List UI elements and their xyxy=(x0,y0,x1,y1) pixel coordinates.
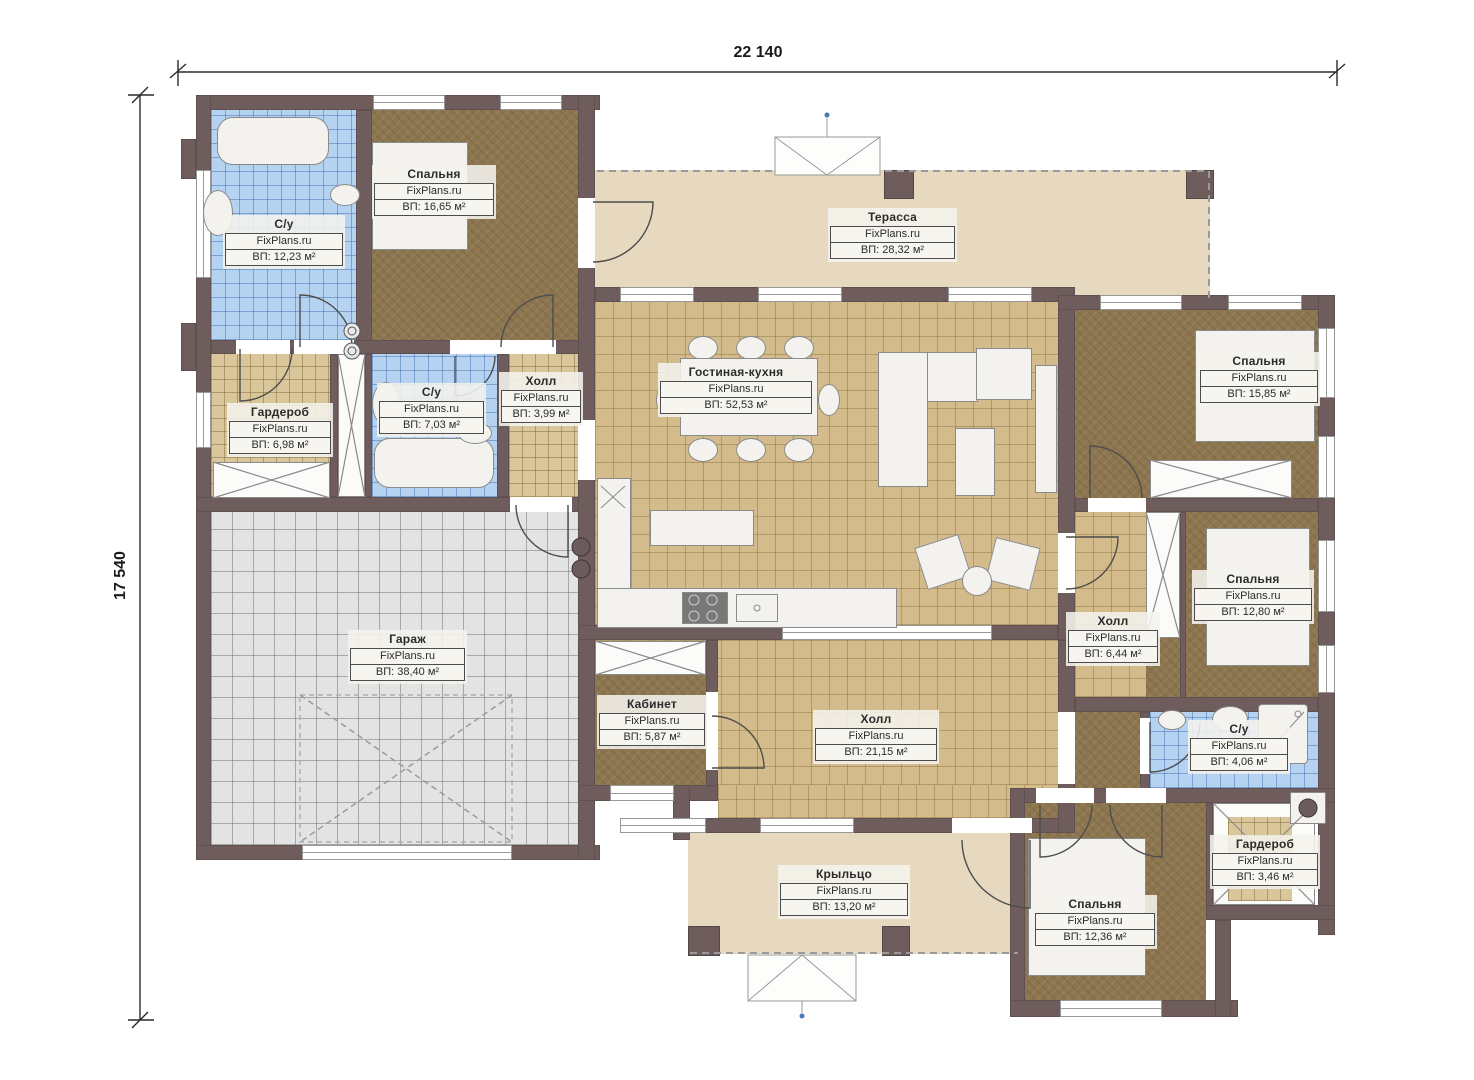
brand-watermark: FixPlans.ru xyxy=(230,422,330,438)
dimension-width-label: 22 140 xyxy=(688,44,828,62)
room-label-hall-1: Холл FixPlans.ru ВП: 3,99 м² xyxy=(499,372,583,426)
room-area: ВП: 12,36 м² xyxy=(1036,930,1154,945)
room-name: Гараж xyxy=(350,632,465,646)
room-name: Спальня xyxy=(374,167,494,181)
room-name: Терасса xyxy=(830,210,955,224)
side-table xyxy=(962,566,992,596)
room-area: ВП: 3,46 м² xyxy=(1213,870,1317,885)
room-area: ВП: 3,99 м² xyxy=(502,407,580,422)
door-opening xyxy=(450,340,500,354)
wall-segment xyxy=(365,354,372,497)
room-info-box: FixPlans.ru ВП: 13,20 м² xyxy=(780,883,908,916)
window xyxy=(620,287,694,302)
room-area: ВП: 13,20 м² xyxy=(781,900,907,915)
window xyxy=(1228,295,1302,310)
garage-gate xyxy=(302,845,512,860)
room-name: Гостиная-кухня xyxy=(660,365,812,379)
room-label-bathroom-2: С/у FixPlans.ru ВП: 7,03 м² xyxy=(377,383,486,437)
room-label-bedroom-2: Спальня FixPlans.ru ВП: 15,85 м² xyxy=(1198,352,1320,406)
door-opening xyxy=(294,340,354,354)
dimension-height-label: 17 540 xyxy=(112,551,130,600)
room-label-wardrobe-2: Гардероб FixPlans.ru ВП: 3,46 м² xyxy=(1210,835,1320,889)
room-info-box: FixPlans.ru ВП: 3,99 м² xyxy=(501,390,581,423)
room-label-living-kitchen: Гостиная-кухня FixPlans.ru ВП: 52,53 м² xyxy=(658,363,814,417)
room-label-terrace: Терасса FixPlans.ru ВП: 28,32 м² xyxy=(828,208,957,262)
room-area: ВП: 6,44 м² xyxy=(1069,647,1157,662)
window xyxy=(610,785,674,801)
brand-watermark: FixPlans.ru xyxy=(1195,589,1311,605)
brand-watermark: FixPlans.ru xyxy=(1036,914,1154,930)
room-name: Спальня xyxy=(1200,354,1318,368)
brand-watermark: FixPlans.ru xyxy=(1191,739,1287,755)
room-info-box: FixPlans.ru ВП: 52,53 м² xyxy=(660,381,812,414)
bathtub xyxy=(374,438,494,488)
room-name: Гардероб xyxy=(1212,837,1318,851)
stove xyxy=(682,592,728,624)
room-info-box: FixPlans.ru ВП: 28,32 м² xyxy=(830,226,955,259)
chair xyxy=(736,336,766,360)
bathtub xyxy=(217,117,329,165)
room-name: Спальня xyxy=(1194,572,1312,586)
room-info-box: FixPlans.ru ВП: 12,80 м² xyxy=(1194,588,1312,621)
room-area: ВП: 5,87 м² xyxy=(600,730,704,745)
brand-watermark: FixPlans.ru xyxy=(380,402,483,418)
porch-column xyxy=(882,926,910,956)
room-label-bedroom-4: Спальня FixPlans.ru ВП: 12,36 м² xyxy=(1033,895,1157,949)
room-label-garage: Гараж FixPlans.ru ВП: 38,40 м² xyxy=(348,630,467,684)
room-label-cabinet: Кабинет FixPlans.ru ВП: 5,87 м² xyxy=(597,695,707,749)
window xyxy=(948,287,1032,302)
room-area: ВП: 4,06 м² xyxy=(1191,755,1287,770)
room-label-porch: Крыльцо FixPlans.ru ВП: 13,20 м² xyxy=(778,865,910,919)
wardrobe-closet xyxy=(1150,460,1292,498)
kitchen-island xyxy=(650,510,754,546)
room-label-bedroom-3: Спальня FixPlans.ru ВП: 12,80 м² xyxy=(1192,570,1314,624)
room-name: Крыльцо xyxy=(780,867,908,881)
room-area: ВП: 28,32 м² xyxy=(831,243,954,258)
room-name: С/у xyxy=(225,217,343,231)
room-info-box: FixPlans.ru ВП: 21,15 м² xyxy=(815,728,937,761)
wardrobe-closet xyxy=(338,354,365,497)
brand-watermark: FixPlans.ru xyxy=(600,714,704,730)
door-opening-entrance xyxy=(952,818,1032,833)
brand-watermark: FixPlans.ru xyxy=(1201,371,1317,387)
room-info-box: FixPlans.ru ВП: 12,36 м² xyxy=(1035,913,1155,946)
chair xyxy=(736,438,766,462)
sideboard xyxy=(1035,365,1057,493)
room-name: Кабинет xyxy=(599,697,705,711)
door-opening xyxy=(1058,712,1075,784)
door-opening xyxy=(510,497,572,512)
door-opening xyxy=(1140,718,1150,774)
room-info-box: FixPlans.ru ВП: 3,46 м² xyxy=(1212,853,1318,886)
room-info-box: FixPlans.ru ВП: 12,23 м² xyxy=(225,233,343,266)
chair xyxy=(688,336,718,360)
room-info-box: FixPlans.ru ВП: 4,06 м² xyxy=(1190,738,1288,771)
room-info-box: FixPlans.ru ВП: 15,85 м² xyxy=(1200,370,1318,403)
window xyxy=(500,95,562,110)
brand-watermark: FixPlans.ru xyxy=(226,234,342,250)
brand-watermark: FixPlans.ru xyxy=(375,184,493,200)
window xyxy=(196,392,211,448)
room-area: ВП: 16,65 м² xyxy=(375,200,493,215)
room-name: С/у xyxy=(1190,722,1288,736)
brand-watermark: FixPlans.ru xyxy=(816,729,936,745)
door-opening xyxy=(1106,788,1166,803)
wardrobe-closet xyxy=(213,462,330,498)
door-opening xyxy=(578,420,595,480)
window xyxy=(373,95,445,110)
room-info-box: FixPlans.ru ВП: 16,65 м² xyxy=(374,183,494,216)
room-name: Холл xyxy=(501,374,581,388)
room-area: ВП: 15,85 м² xyxy=(1201,387,1317,402)
room-info-box: FixPlans.ru ВП: 6,98 м² xyxy=(229,421,331,454)
room-label-hall-3: Холл FixPlans.ru ВП: 21,15 м² xyxy=(813,710,939,764)
wall-pilaster xyxy=(181,323,196,371)
room-name: Холл xyxy=(815,712,937,726)
room-name: Спальня xyxy=(1035,897,1155,911)
window xyxy=(758,287,842,302)
wall-segment xyxy=(356,110,372,345)
door-opening xyxy=(706,692,718,770)
window xyxy=(760,818,854,833)
room-area: ВП: 6,98 м² xyxy=(230,438,330,453)
floor-hall-2-strip xyxy=(1075,712,1140,788)
brand-watermark: FixPlans.ru xyxy=(1069,631,1157,647)
room-area: ВП: 38,40 м² xyxy=(351,665,464,680)
door-opening xyxy=(1058,533,1075,593)
room-info-box: FixPlans.ru ВП: 7,03 м² xyxy=(379,401,484,434)
room-label-bedroom-1: Спальня FixPlans.ru ВП: 16,65 м² xyxy=(372,165,496,219)
coffee-table xyxy=(955,428,995,496)
porch-column xyxy=(688,926,720,956)
brand-watermark: FixPlans.ru xyxy=(502,391,580,407)
kitchen-sink xyxy=(736,594,778,622)
floor-hall-2 xyxy=(1075,512,1146,697)
window xyxy=(1318,328,1335,398)
room-info-box: FixPlans.ru ВП: 5,87 м² xyxy=(599,713,705,746)
brand-watermark: FixPlans.ru xyxy=(1213,854,1317,870)
sofa-ottoman xyxy=(976,348,1032,400)
wall-pilaster xyxy=(181,139,196,179)
terrace-column xyxy=(1186,170,1214,199)
window xyxy=(1318,540,1335,612)
room-label-wardrobe-1: Гардероб FixPlans.ru ВП: 6,98 м² xyxy=(227,403,333,457)
washing-machine xyxy=(1290,792,1326,824)
wall-segment xyxy=(1206,905,1335,920)
window xyxy=(1100,295,1182,310)
door-opening xyxy=(1088,498,1146,512)
window xyxy=(1318,436,1335,498)
room-area: ВП: 21,15 м² xyxy=(816,745,936,760)
door-opening xyxy=(578,198,595,268)
brand-watermark: FixPlans.ru xyxy=(351,649,464,665)
wardrobe-closet xyxy=(595,641,706,675)
chair xyxy=(784,438,814,462)
door-opening xyxy=(498,340,556,354)
room-name: Холл xyxy=(1068,614,1158,628)
window xyxy=(1060,1000,1162,1017)
brand-watermark: FixPlans.ru xyxy=(831,227,954,243)
toilet xyxy=(330,184,360,206)
door-opening xyxy=(236,340,290,354)
brand-watermark: FixPlans.ru xyxy=(661,382,811,398)
room-name: С/у xyxy=(379,385,484,399)
door-opening xyxy=(1036,788,1094,803)
room-name: Гардероб xyxy=(229,405,331,419)
room-area: ВП: 7,03 м² xyxy=(380,418,483,433)
room-area: ВП: 12,23 м² xyxy=(226,250,342,265)
room-area: ВП: 12,80 м² xyxy=(1195,605,1311,620)
room-info-box: FixPlans.ru ВП: 38,40 м² xyxy=(350,648,465,681)
window xyxy=(1318,645,1335,693)
room-label-bathroom-3: С/у FixPlans.ru ВП: 4,06 м² xyxy=(1188,720,1290,774)
chair xyxy=(818,384,840,416)
brand-watermark: FixPlans.ru xyxy=(781,884,907,900)
wall-segment xyxy=(1180,512,1186,702)
room-label-bathroom-1: С/у FixPlans.ru ВП: 12,23 м² xyxy=(223,215,345,269)
floor-plan-canvas: 22 140 17 540 xyxy=(0,0,1474,1080)
sofa xyxy=(878,352,928,487)
room-info-box: FixPlans.ru ВП: 6,44 м² xyxy=(1068,630,1158,663)
terrace-column xyxy=(884,170,914,199)
room-area: ВП: 52,53 м² xyxy=(661,398,811,413)
wall-segment xyxy=(1215,920,1231,1017)
floor-hall-3b xyxy=(718,785,1058,818)
room-label-hall-2: Холл FixPlans.ru ВП: 6,44 м² xyxy=(1066,612,1160,666)
window xyxy=(620,818,706,833)
chair xyxy=(688,438,718,462)
chair xyxy=(784,336,814,360)
toilet xyxy=(1158,710,1186,730)
